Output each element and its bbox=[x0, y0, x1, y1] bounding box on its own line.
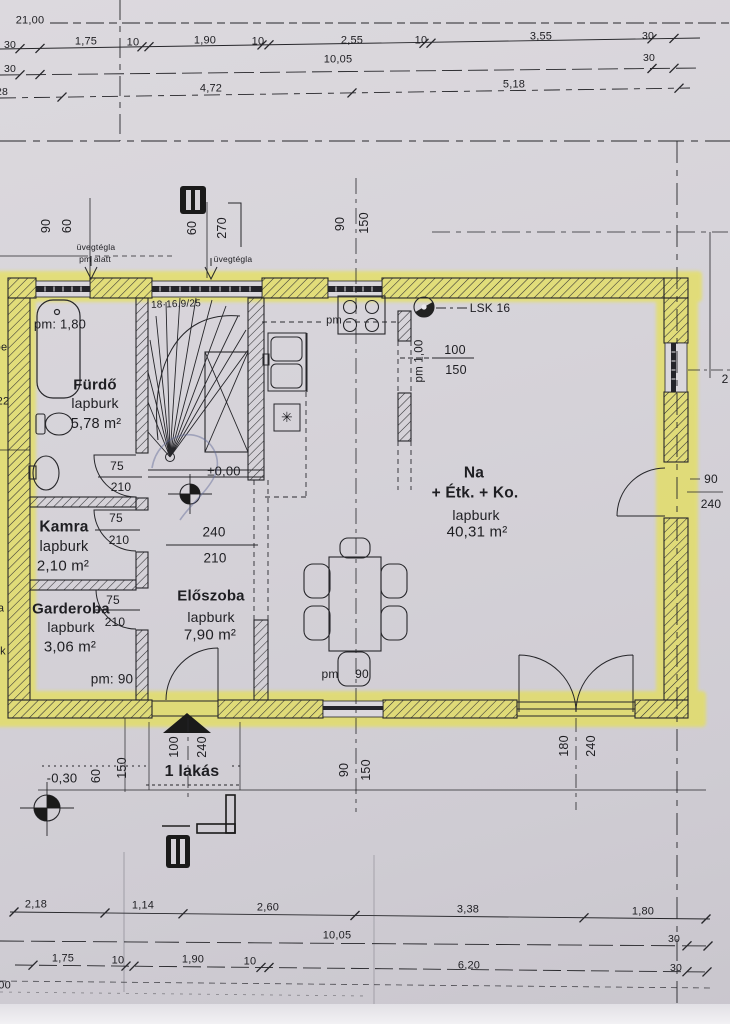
door-dim: 75 bbox=[110, 460, 124, 472]
dim-vert: 270 bbox=[216, 217, 229, 238]
dim-bottom: 10 bbox=[112, 956, 125, 967]
staircase bbox=[148, 298, 264, 477]
window-dim-bottom: 90 bbox=[338, 763, 351, 777]
dim-top: 10,05 bbox=[324, 55, 353, 66]
door-dim: 210 bbox=[109, 534, 130, 546]
room-finish-furdo: lapburk bbox=[71, 396, 118, 410]
dim-bottom: 10 bbox=[244, 957, 257, 968]
appliance-symbol: ✳ bbox=[281, 410, 293, 424]
corner-symbol bbox=[197, 795, 235, 833]
margin-fragment: 22 bbox=[0, 397, 9, 408]
dim-top: 10 bbox=[252, 37, 265, 48]
dim-bottom: 2,18 bbox=[25, 900, 47, 911]
dim-bottom-partial: ,00 bbox=[0, 981, 11, 992]
door-dim-right: 240 bbox=[701, 498, 722, 510]
window-dim-bottom: 150 bbox=[360, 759, 373, 780]
room-finish-nappali: lapburk bbox=[452, 508, 499, 522]
door-dim: 75 bbox=[106, 594, 120, 606]
dim-bottom: 1,75 bbox=[52, 954, 74, 965]
dim-vert: 90 bbox=[334, 217, 347, 231]
dim-vert: 90 bbox=[40, 219, 53, 233]
kitchen-window-dim: 100 bbox=[444, 344, 465, 357]
room-name-nappali-1: Na bbox=[464, 465, 484, 481]
margin-fragment: a bbox=[0, 604, 4, 615]
entry-dim: 100 bbox=[168, 736, 181, 757]
dim-top: 30 bbox=[4, 64, 16, 75]
dim-bottom: 2,60 bbox=[257, 903, 279, 914]
dim-top: 2,55 bbox=[341, 36, 363, 47]
dim-bottom: 6,20 bbox=[458, 961, 480, 972]
dim-vert: 150 bbox=[358, 212, 371, 233]
door-dim: 210 bbox=[111, 481, 132, 493]
vent-label: LSK 16 bbox=[470, 302, 511, 314]
room-name-kamra: Kamra bbox=[39, 519, 88, 535]
room-finish-kamra: lapburk bbox=[40, 540, 89, 555]
dim-top: 5,18 bbox=[503, 80, 525, 91]
scanned-floor-plan: 21,00 30 1,75 10 1,90 10 2,55 10 3,55 30… bbox=[0, 0, 730, 1024]
room-area-kamra: 2,10 m² bbox=[37, 559, 89, 574]
dim-top-total: 21,00 bbox=[16, 16, 45, 27]
dim-top: 30 bbox=[643, 53, 655, 64]
opening-dim: 240 bbox=[202, 525, 225, 539]
dim-bottom: 3,38 bbox=[457, 905, 479, 916]
glassblock-note: üvegtégla bbox=[77, 243, 116, 252]
dim-bottom: 10,05 bbox=[323, 931, 352, 942]
dim-below: 60 bbox=[90, 769, 103, 783]
double-door-dim: 180 bbox=[558, 735, 571, 756]
dim-right-partial: 2 bbox=[722, 373, 729, 385]
room-name-nappali-2: + Étk. + Ko. bbox=[432, 485, 519, 501]
pm-table-label: pm bbox=[321, 668, 338, 680]
room-name-furdo: Fürdő bbox=[73, 378, 117, 393]
dim-vert: 60 bbox=[61, 219, 74, 233]
dim-bottom: 30 bbox=[668, 934, 680, 945]
margin-fragment: oe bbox=[0, 343, 7, 354]
dim-top: 28 bbox=[0, 87, 8, 98]
section-symbol-bottom bbox=[162, 826, 190, 868]
door-dim: 75 bbox=[109, 512, 123, 524]
parapet-note-garderoba: pm: 90 bbox=[91, 672, 133, 686]
level-label-main: ±0,00 bbox=[207, 465, 240, 478]
unit-label: 1 lakás bbox=[165, 764, 220, 780]
paper-edge bbox=[0, 1004, 730, 1024]
dim-top: 1,90 bbox=[194, 36, 216, 47]
kitchen-window-dim: 150 bbox=[445, 364, 466, 377]
toilet-icon bbox=[36, 413, 73, 435]
pm-kitchen-label: pm bbox=[326, 316, 342, 327]
room-name-eloszoba: Előszoba bbox=[177, 589, 244, 604]
dim-top: 1,75 bbox=[75, 37, 97, 48]
dim-bottom: 1,80 bbox=[632, 907, 654, 918]
room-name-garderoba: Garderoba bbox=[32, 602, 110, 617]
dim-below: 150 bbox=[116, 757, 129, 778]
stair-spec-label: 18·16,9/25 bbox=[151, 299, 201, 311]
dim-top: 30 bbox=[4, 40, 16, 51]
section-symbol-top bbox=[180, 186, 206, 214]
dim-top: 10 bbox=[415, 36, 428, 47]
pm-wall-label: pm 1,00 bbox=[414, 340, 426, 383]
dim-top: 3,55 bbox=[530, 32, 552, 43]
room-area-garderoba: 3,06 m² bbox=[44, 640, 96, 655]
entry-dim: 240 bbox=[196, 736, 209, 757]
level-label-entry: -0,30 bbox=[47, 772, 78, 785]
double-door-dim: 240 bbox=[585, 735, 598, 756]
dashed-lines bbox=[254, 322, 411, 620]
room-area-nappali: 40,31 m² bbox=[447, 525, 508, 540]
door-dim-right: 90 bbox=[704, 473, 718, 485]
dining-set-icon bbox=[304, 538, 407, 686]
room-area-furdo: 5,78 m² bbox=[71, 417, 122, 432]
room-area-eloszoba: 7,90 m² bbox=[184, 628, 236, 643]
dim-top: 10 bbox=[127, 38, 140, 49]
door-dim: 210 bbox=[105, 616, 126, 628]
opening-dim: 210 bbox=[203, 551, 226, 565]
glassblock-note: pm alatt bbox=[79, 255, 111, 264]
dim-vert: 60 bbox=[186, 221, 199, 235]
dim-bottom: 1,90 bbox=[182, 955, 204, 966]
dim-top: 30 bbox=[642, 31, 654, 42]
parapet-note-furdo: pm: 1,80 bbox=[34, 318, 86, 331]
kitchen-sink-icon bbox=[263, 333, 307, 392]
pm-table-label: 90 bbox=[355, 668, 369, 680]
dim-bottom: 30 bbox=[670, 963, 682, 974]
dim-bottom: 1,14 bbox=[132, 901, 154, 912]
margin-fragment: k bbox=[0, 647, 6, 658]
room-finish-eloszoba: lapburk bbox=[187, 610, 234, 624]
dim-top: 4,72 bbox=[200, 84, 222, 95]
room-finish-garderoba: lapburk bbox=[47, 620, 94, 634]
glassblock-note: üvegtégla bbox=[214, 255, 253, 264]
